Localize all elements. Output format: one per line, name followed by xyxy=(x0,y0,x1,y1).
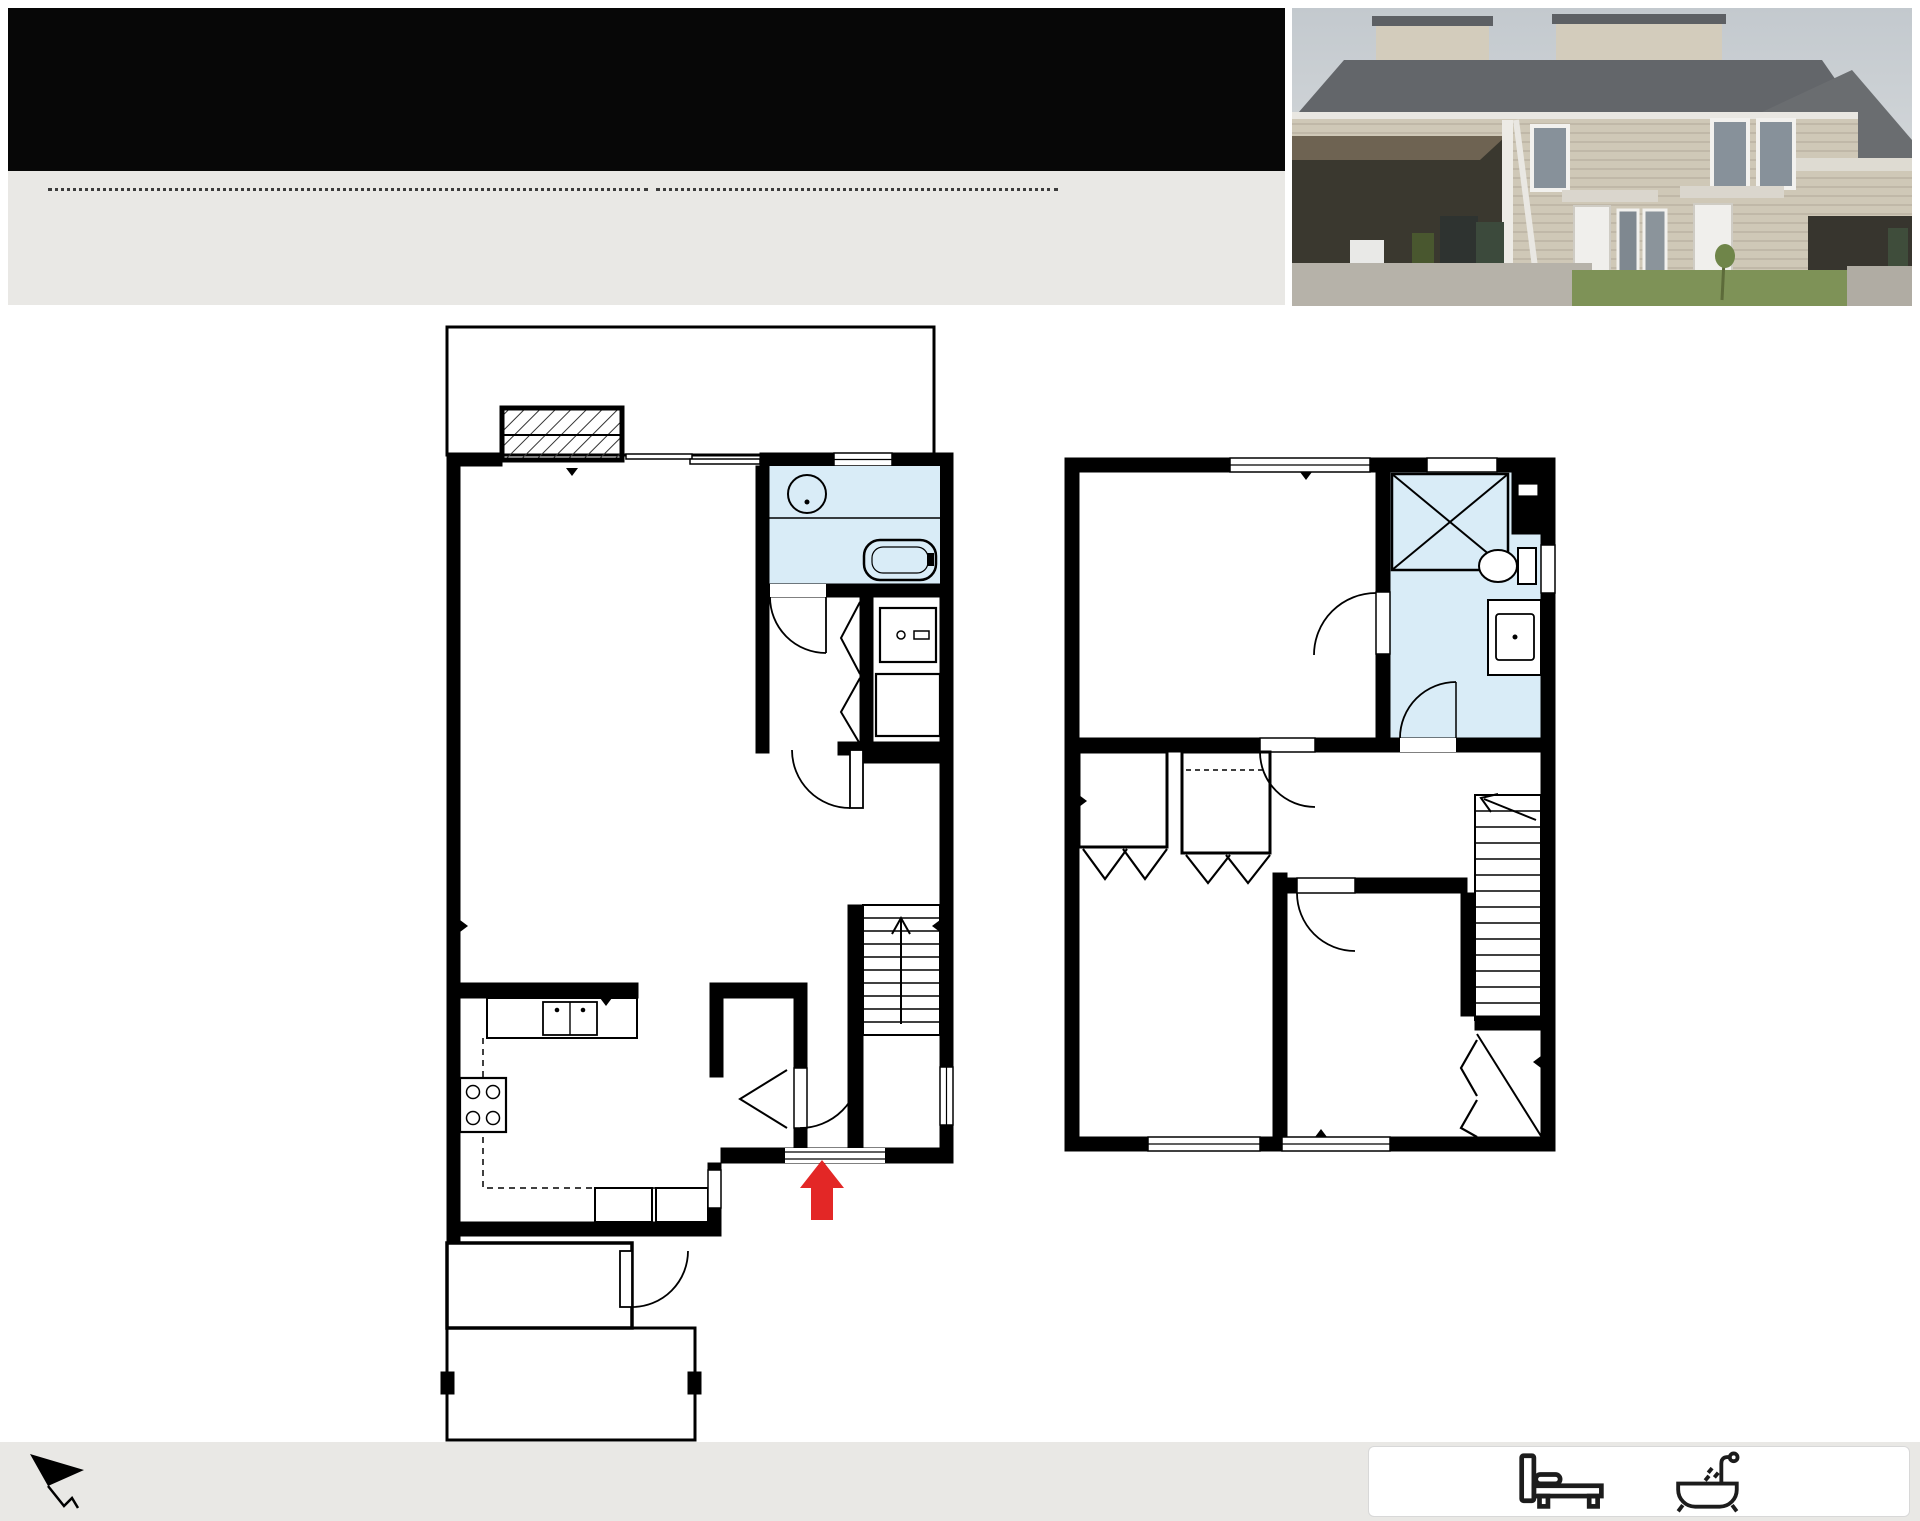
stairs-down-arrow xyxy=(1484,799,1536,820)
kitchen-door-swing xyxy=(740,1070,787,1128)
floorplan-sheet xyxy=(0,0,1920,1521)
carport-outline xyxy=(447,1328,695,1440)
kitchen-counter xyxy=(487,998,637,1038)
window xyxy=(1541,545,1555,593)
patio-carport-row xyxy=(656,199,1276,233)
bedroom-door-leaf xyxy=(1297,878,1355,893)
closet xyxy=(1182,752,1270,853)
stove xyxy=(460,1078,506,1132)
living-area-column xyxy=(48,179,648,199)
bifold-door xyxy=(1461,1040,1477,1096)
dishwasher xyxy=(595,1188,652,1222)
window xyxy=(1712,120,1748,188)
washer xyxy=(880,608,936,662)
bath-door-arc xyxy=(770,597,826,653)
driveway xyxy=(1292,263,1592,306)
upper-cabinets xyxy=(483,1038,707,1188)
carport-post xyxy=(441,1372,454,1394)
toilet xyxy=(1479,550,1517,582)
carport-post xyxy=(688,1372,701,1394)
excluded-area-column xyxy=(656,179,1276,241)
bedroom-door-arc xyxy=(1260,752,1315,807)
bath-door-gap xyxy=(770,584,826,597)
entry-arrow xyxy=(800,1160,844,1220)
lawn xyxy=(1572,270,1847,306)
bed-icon xyxy=(1514,1452,1610,1512)
foyer-door-leaf xyxy=(794,1068,807,1128)
window xyxy=(1532,126,1568,190)
storage-door-leaf xyxy=(620,1251,632,1307)
floor2-plan xyxy=(1060,450,1560,1190)
front-door-gap xyxy=(785,1148,885,1163)
compass-icon xyxy=(26,1450,98,1512)
storage-outline xyxy=(447,1243,632,1328)
bedroom-door-arc xyxy=(1297,893,1355,951)
window xyxy=(1427,458,1497,472)
primary-door-arc xyxy=(1314,593,1376,655)
closet-door-arc xyxy=(792,750,850,808)
beds-baths-badge xyxy=(1368,1446,1910,1517)
floor1-plan xyxy=(440,322,960,1442)
property-photo xyxy=(1292,8,1912,306)
cabinet xyxy=(656,1188,708,1222)
bath-room xyxy=(769,466,940,584)
primary-door-leaf xyxy=(1376,592,1390,654)
bath2-door-gap xyxy=(1400,738,1456,752)
header-bar xyxy=(8,8,1285,171)
bifold-door xyxy=(841,678,860,744)
footer-bar xyxy=(0,1442,1920,1521)
kitchen-window xyxy=(708,1170,721,1208)
storage-door-arc xyxy=(632,1251,688,1307)
area-summary xyxy=(8,171,1285,305)
bifold-door xyxy=(1083,849,1127,879)
patio-slider xyxy=(626,454,692,459)
bedroom-door-leaf xyxy=(1260,738,1315,752)
right-wall xyxy=(940,453,953,1163)
dotted-divider xyxy=(656,188,1058,191)
bathtub-icon xyxy=(1672,1451,1746,1513)
closet-door-leaf xyxy=(850,750,863,808)
closet xyxy=(1079,752,1167,847)
bifold-door xyxy=(841,602,860,674)
left-wall xyxy=(447,453,460,1243)
wd-closet xyxy=(876,674,940,736)
bifold-door xyxy=(1186,855,1230,883)
window xyxy=(1758,120,1794,188)
dotted-divider xyxy=(48,188,648,191)
